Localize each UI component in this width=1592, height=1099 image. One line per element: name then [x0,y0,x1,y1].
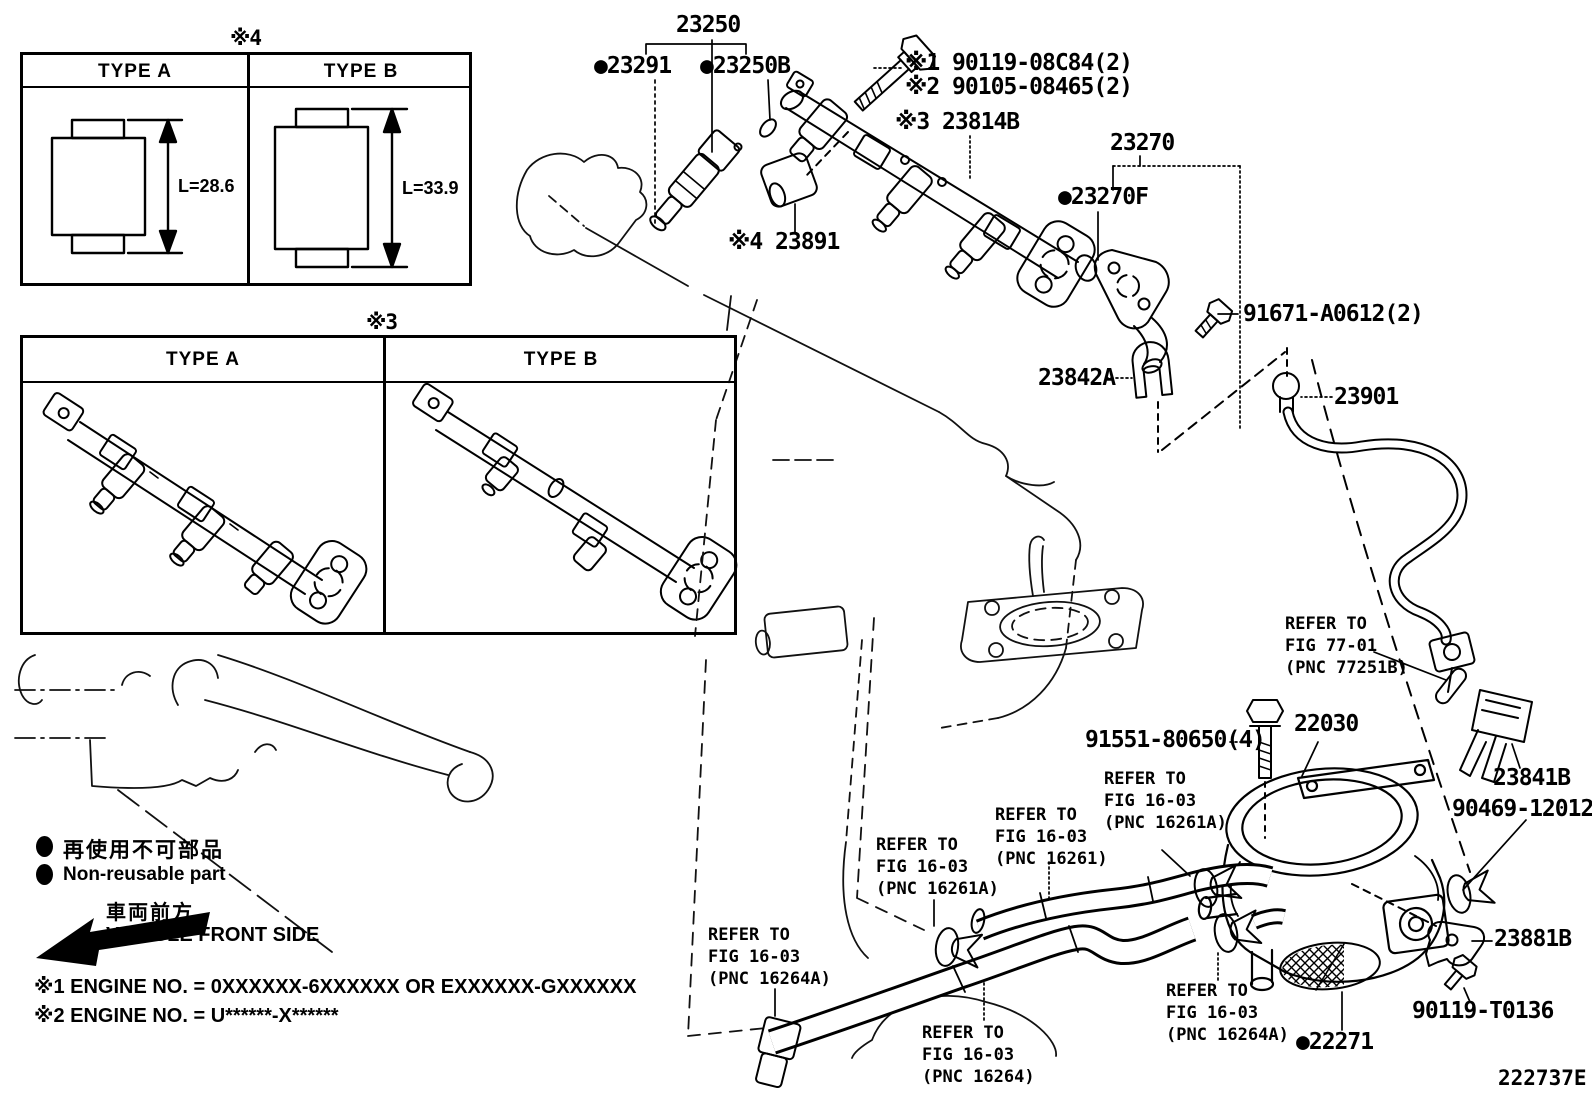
rail-type-a-title: TYPE A [23,349,383,371]
part-label-90469-12012: 90469-12012 [1452,798,1592,821]
part-label-23891: ※4 23891 [728,231,839,254]
vehicle-front-en: VEHICLE FRONT SIDE [106,924,319,947]
part-label-91551-80650: 91551-80650(4) [1085,729,1265,752]
refer-note-fig77-01: REFER TO FIG 77-01 (PNC 77251B) [1285,613,1408,679]
engine-note-1: ※1 ENGINE NO. = 0XXXXXX-6XXXXXX OR EXXXX… [34,974,636,999]
part-label-23270: 23270 [1110,132,1174,155]
part-label-90119-T0136: 90119-T0136 [1412,1000,1553,1023]
non-reusable-dot-icon [36,864,53,885]
part-label-91671-A0612: 91671-A0612(2) [1243,303,1423,326]
part-label-23291: ●23291 [594,55,671,78]
refer-note-fig16-03-16264a-left: REFER TO FIG 16-03 (PNC 16264A) [708,924,831,990]
part-label-90105-08465: ※2 90105-08465(2) [905,76,1132,99]
legend-non-reusable-jp: 再使用不可部品 [63,834,224,864]
vehicle-front-jp: 車両前方 [106,896,194,925]
inset-injector-types-divider [247,55,250,283]
part-label-23250: 23250 [676,14,740,37]
part-label-23814B: ※3 23814B [895,111,1019,134]
legend-non-reusable-en: Non-reusable part [63,864,226,886]
part-label-22271: ●22271 [1296,1031,1373,1054]
diagram-code: 222737E [1498,1066,1587,1090]
inset-injector-type-b-title: TYPE B [250,61,472,83]
inset-rail-types: TYPE A TYPE B [20,335,737,635]
refer-note-fig16-03-16261: REFER TO FIG 16-03 (PNC 16261) [995,804,1108,870]
inset-injector-types-marker: ※4 [230,26,261,50]
part-label-23250B: ●23250B [700,55,790,78]
refer-note-fig16-03-16264a-right: REFER TO FIG 16-03 (PNC 16264A) [1166,980,1289,1046]
parts-diagram-canvas: ※4 TYPE A TYPE B L=28.6 L=33.9 ※3 TYPE A… [0,0,1592,1099]
part-label-23901: 23901 [1334,386,1398,409]
inset-rail-types-divider [383,338,386,632]
part-label-22030: 22030 [1294,713,1358,736]
refer-note-fig16-03-16264: REFER TO FIG 16-03 (PNC 16264) [922,1022,1035,1088]
non-reusable-dot-icon [36,836,53,857]
part-label-90119-08C84: ※1 90119-08C84(2) [905,52,1132,75]
rail-type-b-title: TYPE B [386,349,736,371]
injector-type-b-length: L=33.9 [402,178,459,199]
refer-note-fig16-03-16261a-right: REFER TO FIG 16-03 (PNC 16261A) [1104,768,1227,834]
inset-injector-types: TYPE A TYPE B [20,52,472,286]
inset-rail-types-marker: ※3 [366,310,397,334]
part-label-23881B: 23881B [1494,928,1571,951]
part-label-23270F: ●23270F [1058,186,1148,209]
part-label-23842A: 23842A [1038,367,1115,390]
injector-type-a-length: L=28.6 [178,176,235,197]
engine-note-2: ※2 ENGINE NO. = U******-X****** [34,1003,339,1028]
refer-note-fig16-03-16261a-left: REFER TO FIG 16-03 (PNC 16261A) [876,834,999,900]
inset-injector-type-a-title: TYPE A [23,61,247,83]
part-label-23841B: 23841B [1493,767,1570,790]
